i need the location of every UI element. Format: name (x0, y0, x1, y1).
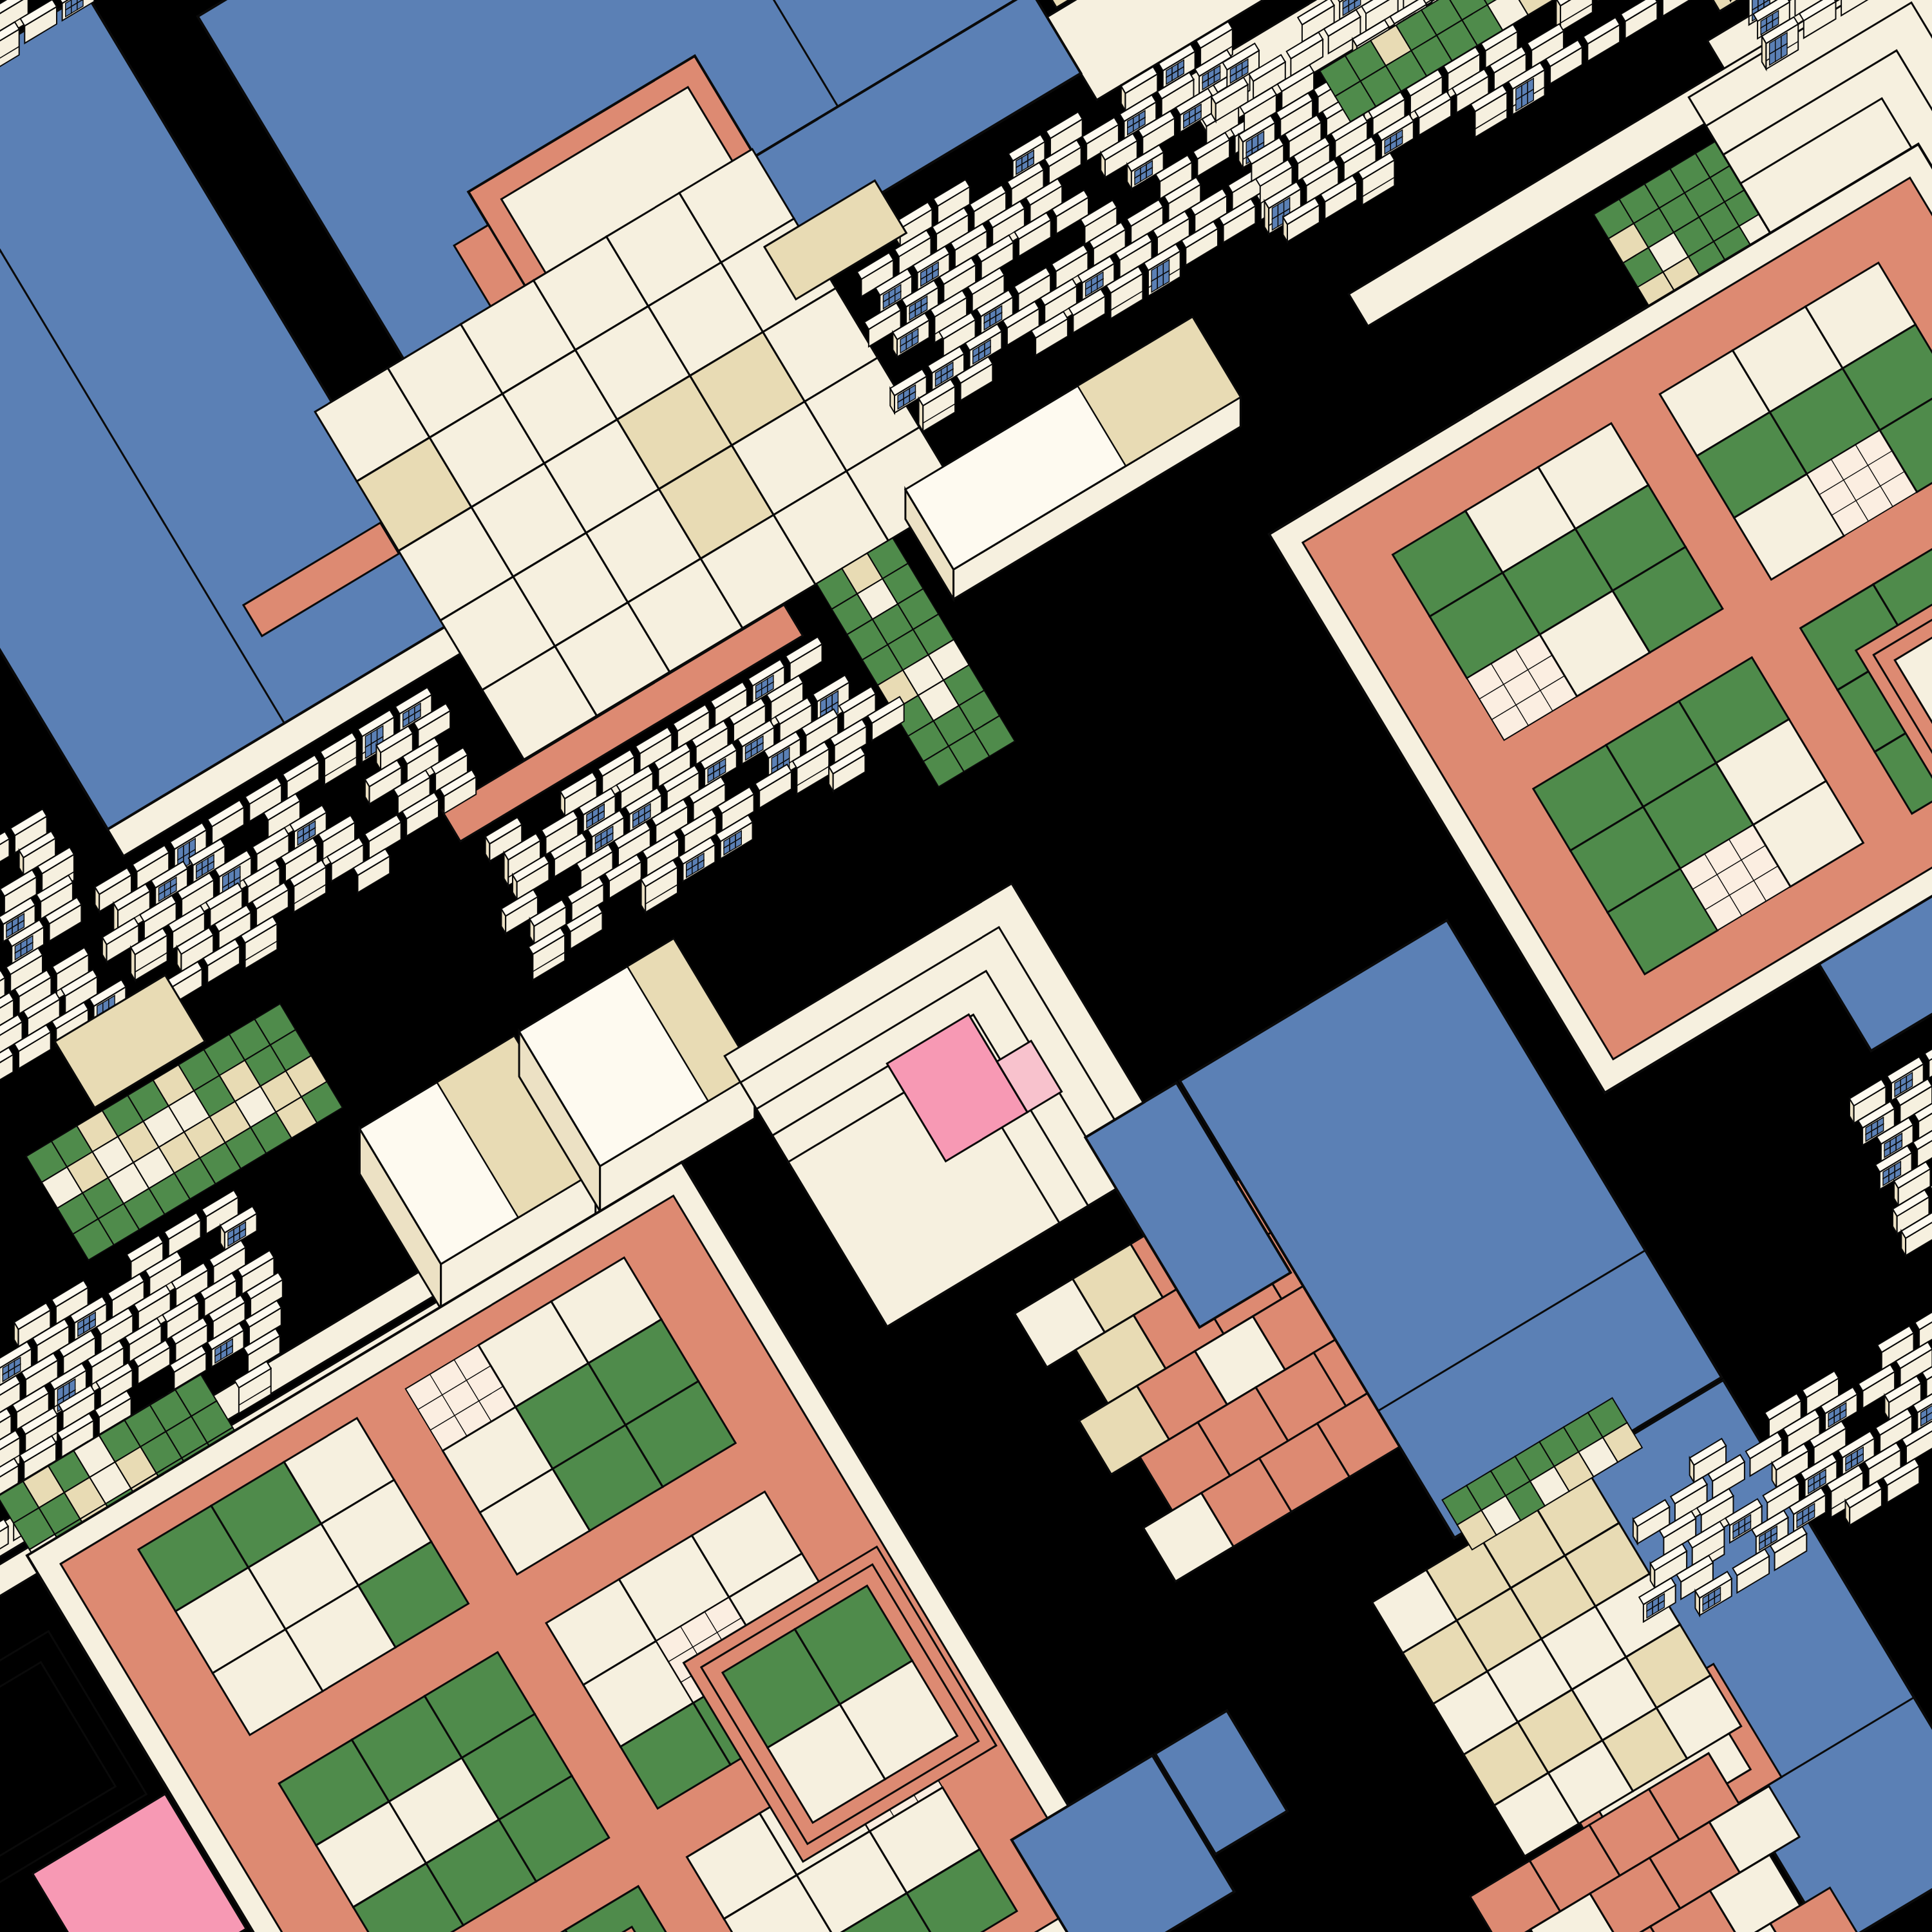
artwork-stage (0, 0, 1932, 1932)
generative-artwork (0, 0, 1932, 1932)
